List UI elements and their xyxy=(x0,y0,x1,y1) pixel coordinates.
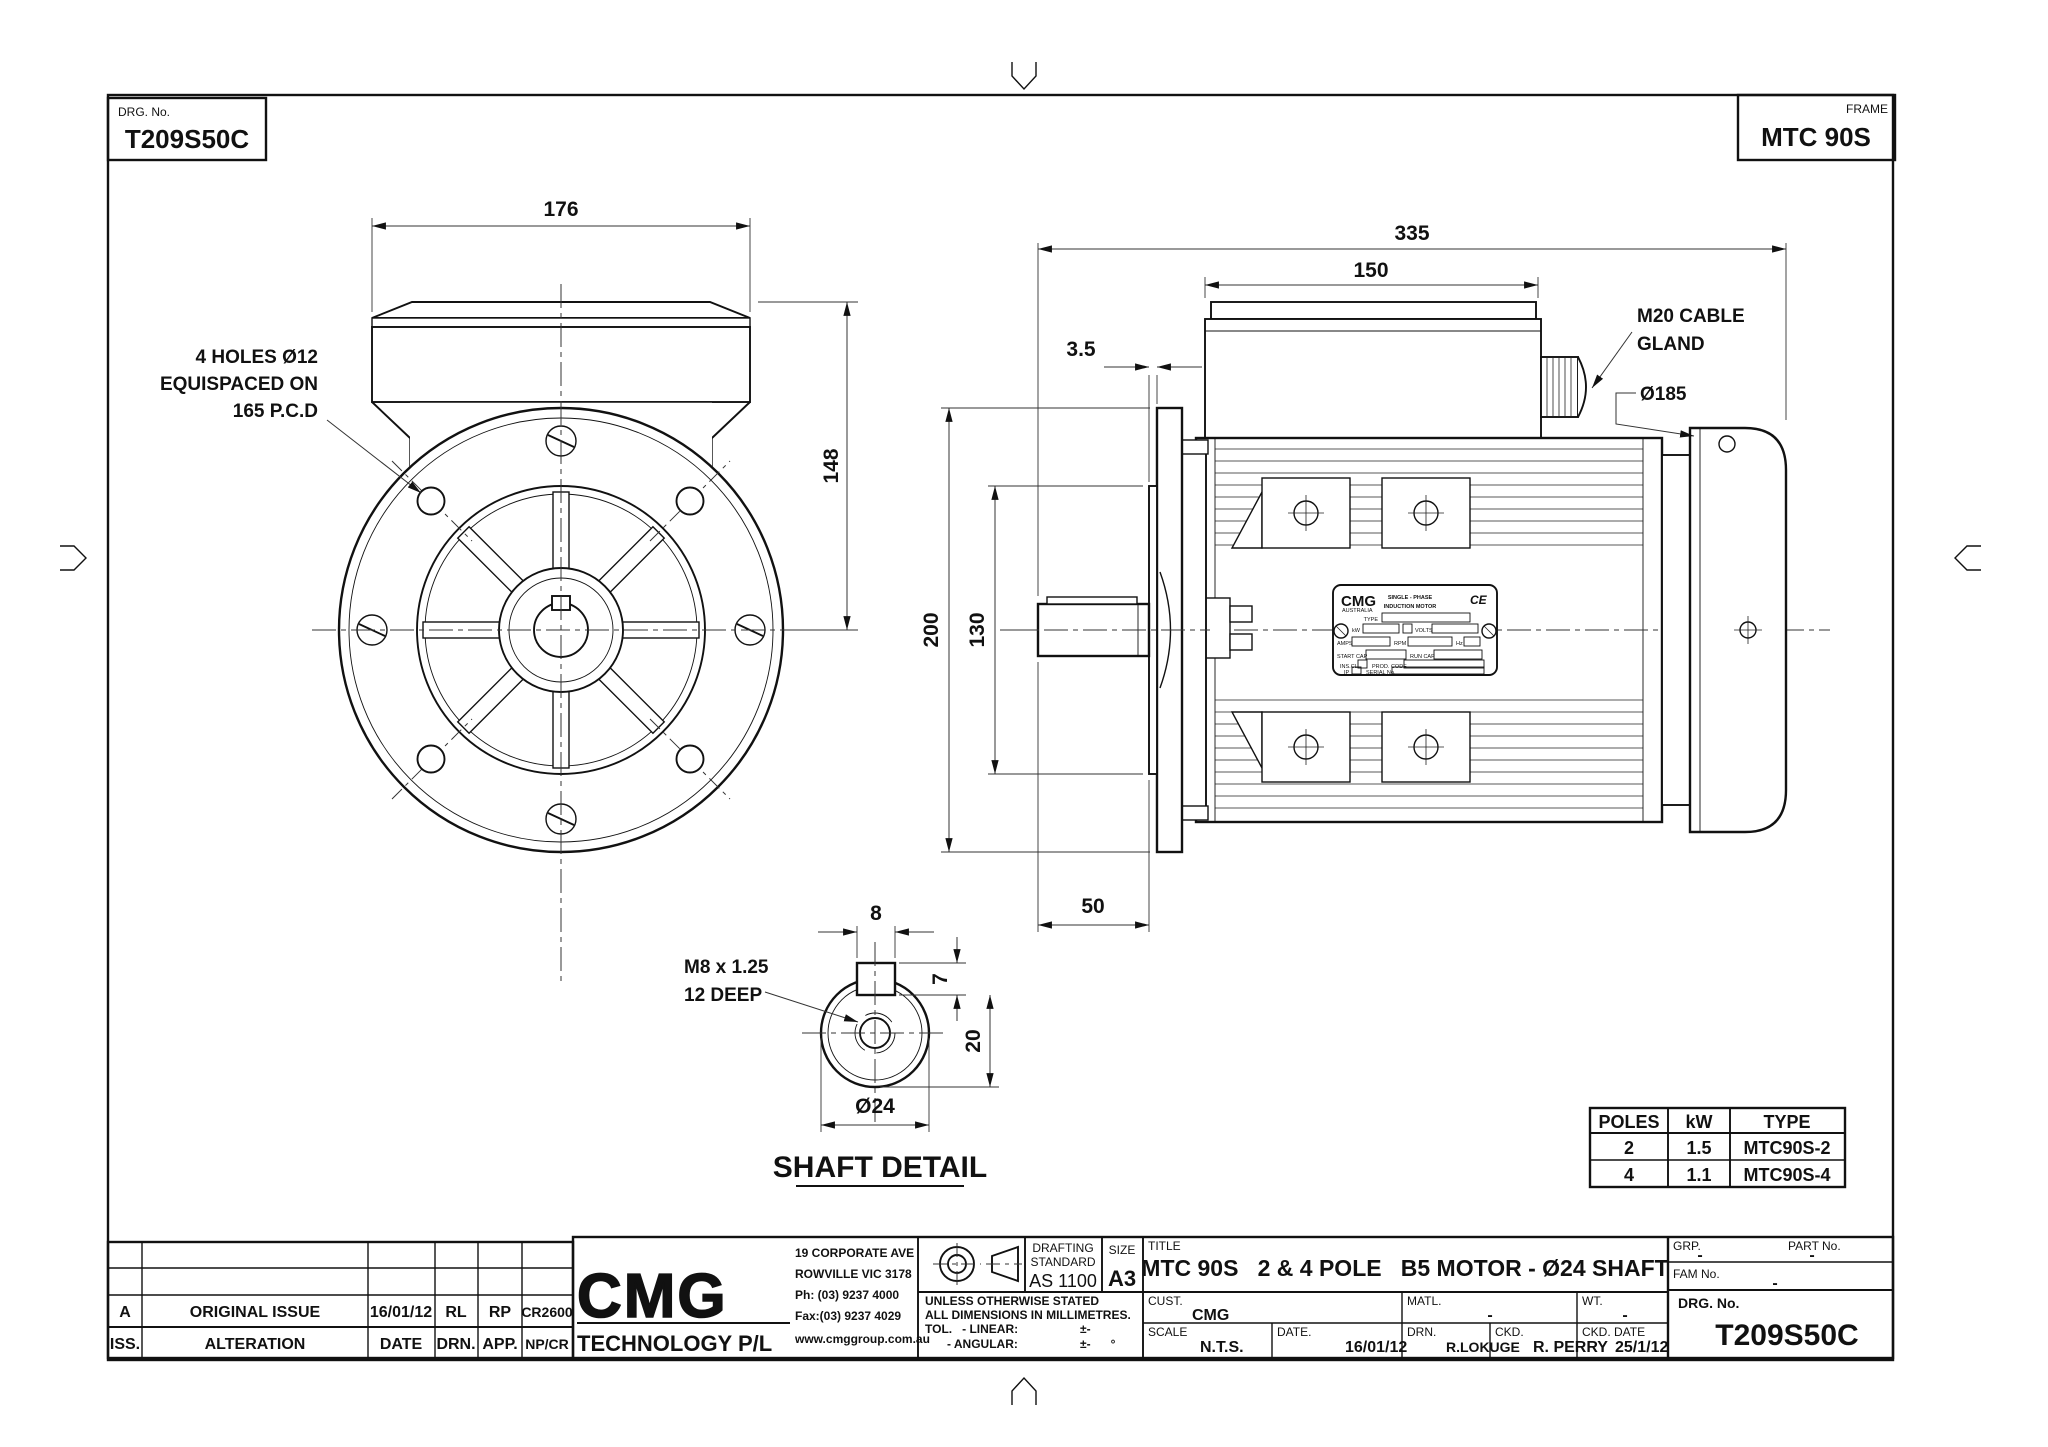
date-label: DATE. xyxy=(1277,1325,1311,1339)
rev-a-alteration: ORIGINAL ISSUE xyxy=(190,1304,321,1321)
address-line5: www.cmggroup.com.au xyxy=(794,1332,930,1346)
tolerance-lin-val: ±- xyxy=(1080,1322,1091,1336)
holes-note-3: 165 P.C.D xyxy=(233,401,318,422)
side-view: CMG AUSTRALIA SINGLE - PHASE INDUCTION M… xyxy=(920,222,1830,932)
drg-no-box: DRG. No. T209S50C xyxy=(108,98,266,160)
rev-h-drn: DRN. xyxy=(436,1336,475,1353)
size-label: SIZE xyxy=(1109,1243,1136,1257)
thread-note-1: M8 x 1.25 xyxy=(684,957,769,978)
projection-symbol xyxy=(933,1243,1022,1285)
ratings-r2-poles: 4 xyxy=(1624,1165,1634,1185)
drn-value: R.LOKUGE xyxy=(1446,1339,1520,1355)
rev-a-iss: A xyxy=(119,1304,131,1321)
ce-mark: CE xyxy=(1470,593,1488,607)
fam-no-value: - xyxy=(1772,1275,1777,1292)
matl-value: - xyxy=(1487,1307,1492,1324)
dim-176: 176 xyxy=(543,198,578,221)
frame-value: MTC 90S xyxy=(1761,122,1871,152)
dim-150: 150 xyxy=(1353,259,1388,282)
ckd-label: CKD. xyxy=(1495,1325,1524,1339)
matl-label: MATL. xyxy=(1407,1294,1441,1308)
drg-no-label-bottom: DRG. No. xyxy=(1678,1295,1739,1311)
dim-200: 200 xyxy=(920,612,943,647)
ratings-h-poles: POLES xyxy=(1598,1112,1659,1132)
nameplate-type-label: TYPE xyxy=(1364,617,1379,623)
scale-label: SCALE xyxy=(1148,1325,1187,1339)
drn-label: DRN. xyxy=(1407,1325,1436,1339)
tolerance-line1: UNLESS OTHERWISE STATED xyxy=(925,1294,1099,1308)
lifting-eye xyxy=(1719,436,1735,452)
cust-value: CMG xyxy=(1192,1307,1229,1324)
fan-cowl xyxy=(1690,428,1786,832)
ratings-r1-poles: 2 xyxy=(1624,1138,1634,1158)
date-value: 16/01/12 xyxy=(1345,1339,1407,1356)
nameplate-serial-label: SERIAL No. xyxy=(1366,670,1396,676)
tolerance-line3: TOL. - LINEAR: xyxy=(925,1322,1018,1336)
keyway xyxy=(857,963,895,995)
rev-a-npcr: CR2600 xyxy=(521,1304,573,1320)
ratings-table: POLES kW TYPE 2 1.5 MTC90S-2 4 1.1 MTC90… xyxy=(1590,1108,1845,1187)
ckd-value: R. PERRY xyxy=(1533,1339,1608,1356)
nameplate-runcap-label: RUN CAP xyxy=(1410,654,1435,660)
nameplate-brand-sub: AUSTRALIA xyxy=(1342,608,1373,614)
drawing-sheet: DRG. No. T209S50C FRAME MTC 90S xyxy=(0,0,2048,1447)
dim-50: 50 xyxy=(1081,895,1104,918)
nameplate-kw-label: kW xyxy=(1352,628,1361,634)
company-address: 19 CORPORATE AVE ROWVILLE VIC 3178 Ph: (… xyxy=(794,1246,930,1346)
wt-label: WT. xyxy=(1582,1294,1603,1308)
nameplate-ip-label: IP xyxy=(1344,670,1350,676)
frame-label: FRAME xyxy=(1846,102,1888,116)
tolerance-ang-val: ±- ° xyxy=(1080,1337,1116,1351)
ratings-r2-type: MTC90S-4 xyxy=(1743,1165,1830,1185)
center-mark-right xyxy=(1955,546,1981,570)
thread-note-2: 12 DEEP xyxy=(684,985,762,1006)
title-label: TITLE xyxy=(1148,1239,1181,1253)
dim-7: 7 xyxy=(929,973,952,985)
drafting-line1: DRAFTING xyxy=(1032,1241,1093,1255)
nameplate-line2: INDUCTION MOTOR xyxy=(1384,604,1436,610)
address-line4: Fax:(03) 9237 4029 xyxy=(795,1309,901,1323)
address-line2: ROWVILLE VIC 3178 xyxy=(795,1267,912,1281)
wt-value: - xyxy=(1622,1307,1627,1324)
nameplate-rpm-label: RPM xyxy=(1394,641,1407,647)
holes-note-2: EQUISPACED ON xyxy=(160,374,318,395)
holes-note-1: 4 HOLES Ø12 xyxy=(196,347,319,368)
drg-no-label: DRG. No. xyxy=(118,105,170,119)
front-view: 176 148 4 HOLES Ø12 EQUISPACED ON 165 P.… xyxy=(160,198,858,982)
address-line3: Ph: (03) 9237 4000 xyxy=(795,1288,899,1302)
ckd-date-label: CKD. DATE xyxy=(1582,1325,1645,1339)
revision-table: A ORIGINAL ISSUE 16/01/12 RL RP CR2600 I… xyxy=(108,1242,573,1358)
rev-a-app: RP xyxy=(489,1304,512,1321)
drawing-title: MTC 90S 2 & 4 POLE B5 MOTOR - Ø24 SHAFT xyxy=(1141,1255,1668,1281)
center-mark-top xyxy=(1012,62,1036,89)
nameplate: CMG AUSTRALIA SINGLE - PHASE INDUCTION M… xyxy=(1333,585,1497,676)
tolerance-line4: - ANGULAR: xyxy=(947,1337,1018,1351)
rev-h-date: DATE xyxy=(380,1336,423,1353)
ratings-r1-type: MTC90S-2 xyxy=(1743,1138,1830,1158)
company-logo: CMG TECHNOLOGY P/L xyxy=(577,1262,790,1356)
drg-no-value-bottom: T209S50C xyxy=(1715,1319,1858,1352)
rev-h-alteration: ALTERATION xyxy=(205,1336,306,1353)
nameplate-volts-label: VOLTS xyxy=(1415,628,1433,634)
fam-no-label: FAM No. xyxy=(1673,1267,1720,1281)
center-mark-bottom xyxy=(1012,1378,1036,1405)
rev-h-iss: ISS. xyxy=(110,1336,140,1353)
dim-130: 130 xyxy=(966,612,989,647)
shaft xyxy=(1038,597,1149,656)
grp-value: - xyxy=(1697,1247,1702,1264)
address-line1: 19 CORPORATE AVE xyxy=(795,1246,914,1260)
tolerance-line2: ALL DIMENSIONS IN MILLIMETRES. xyxy=(925,1308,1131,1322)
drafting-line2: STANDARD xyxy=(1030,1255,1095,1269)
rev-a-drn: RL xyxy=(445,1304,467,1321)
ckd-date-value: 25/1/12 xyxy=(1615,1339,1668,1356)
nameplate-hz-label: Hz xyxy=(1456,641,1463,647)
size-value: A3 xyxy=(1108,1266,1136,1291)
dim-8: 8 xyxy=(870,902,882,925)
rev-a-date: 16/01/12 xyxy=(370,1304,432,1321)
frame-box: FRAME MTC 90S xyxy=(1738,95,1895,160)
ratings-h-kw: kW xyxy=(1686,1112,1713,1132)
ratings-h-type: TYPE xyxy=(1763,1112,1810,1132)
title-block: CMG TECHNOLOGY P/L 19 CORPORATE AVE ROWV… xyxy=(573,1237,1893,1358)
cust-label: CUST. xyxy=(1148,1294,1183,1308)
shaft-detail-title: SHAFT DETAIL xyxy=(773,1151,987,1184)
dim-20: 20 xyxy=(962,1029,985,1052)
nameplate-line1: SINGLE - PHASE xyxy=(1388,595,1433,601)
rev-h-npcr: NP/CR xyxy=(525,1336,569,1352)
nameplate-amps-label: AMPS xyxy=(1337,641,1353,647)
engineering-drawing: DRG. No. T209S50C FRAME MTC 90S xyxy=(0,0,2048,1447)
shaft-detail: 8 7 20 Ø24 M8 x 1.25 12 DEEP SHAFT DETAI… xyxy=(684,902,999,1186)
drg-no-value: T209S50C xyxy=(125,124,250,154)
dim-335: 335 xyxy=(1394,222,1429,245)
drafting-standard: AS 1100 xyxy=(1029,1271,1097,1291)
company-name: TECHNOLOGY P/L xyxy=(577,1331,772,1356)
cowl-dia-note: Ø185 xyxy=(1640,384,1687,405)
nameplate-startcap-label: START CAP xyxy=(1337,654,1368,660)
part-no-value: - xyxy=(1809,1247,1814,1264)
gland-note-1: M20 CABLE xyxy=(1637,306,1745,327)
logo-text: CMG xyxy=(577,1262,728,1331)
dim-3-5: 3.5 xyxy=(1066,338,1096,361)
gland-note-2: GLAND xyxy=(1637,334,1705,355)
ratings-r1-kw: 1.5 xyxy=(1686,1138,1711,1158)
scale-value: N.T.S. xyxy=(1200,1339,1244,1356)
dim-dia24: Ø24 xyxy=(855,1095,895,1118)
dim-148: 148 xyxy=(820,448,843,483)
cable-gland xyxy=(1541,357,1586,417)
ratings-r2-kw: 1.1 xyxy=(1686,1165,1711,1185)
center-mark-left xyxy=(60,546,86,570)
rev-h-app: APP. xyxy=(482,1336,517,1353)
